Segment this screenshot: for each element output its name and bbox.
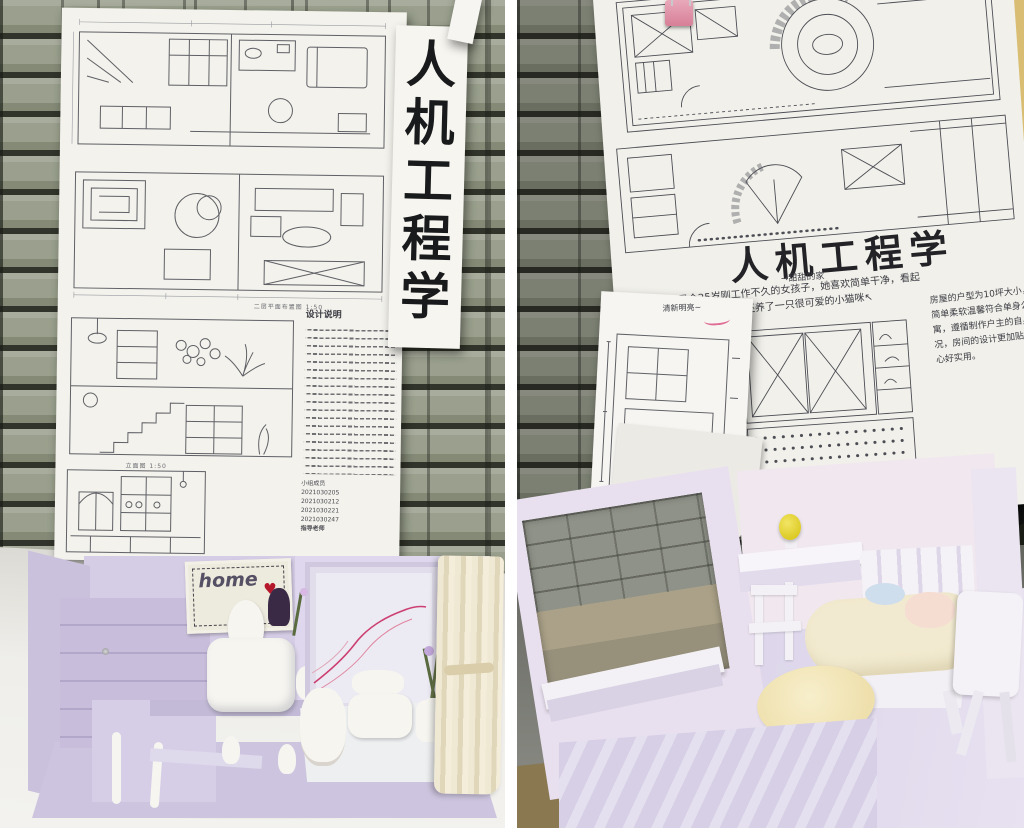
- design-notes-handwriting: [303, 324, 397, 475]
- model-rocking-chair: [300, 688, 346, 766]
- section-drawing: [64, 308, 302, 467]
- plant-flower: [300, 588, 308, 596]
- title-char: 人: [394, 35, 467, 95]
- model-stool: [222, 736, 240, 764]
- plant-flower: [424, 646, 434, 656]
- floor-plan-drawing-b: [66, 164, 392, 303]
- model-sofa: [348, 694, 412, 738]
- shelf-knob: [102, 648, 109, 655]
- dark-vase: [268, 588, 290, 626]
- photo-collage: 二层平面布置图 1:50 立面图 1:50 设计说明: [0, 0, 1024, 828]
- title-char: 程: [390, 209, 463, 269]
- binder-clip-handle: [671, 0, 691, 6]
- title-char: 机: [393, 93, 466, 153]
- model-post: [112, 732, 121, 804]
- design-notes-heading: 设计说明: [306, 307, 398, 321]
- left-poster-sheet: 二层平面布置图 1:50 立面图 1:50 设计说明: [54, 8, 407, 565]
- yellow-lamp: [779, 514, 801, 540]
- blue-pillow: [865, 583, 905, 605]
- pink-scribble: [704, 314, 731, 326]
- design-notes-block: 设计说明: [303, 307, 397, 476]
- floor-plan-drawing-a: [70, 18, 394, 164]
- team-members-block: 小组成员 2021030205 2021030212 2021030221 20…: [300, 479, 395, 556]
- model-stool: [278, 744, 296, 774]
- side-note-block: 房屋的户型为10坪大小， 简单柔软温馨符合单身公 寓，遵循制作户主的自身情 况，…: [929, 283, 1024, 369]
- model-curtain: [434, 555, 504, 794]
- vertical-title-strip: 人 机 工 程 学: [388, 25, 468, 349]
- title-char: 学: [388, 267, 461, 327]
- model-sofa-back: [352, 670, 404, 696]
- sheet-note: 清新明亮~: [662, 301, 701, 316]
- home-sign-text: home: [198, 568, 258, 592]
- right-photo: 人机工程学 →甜甜的家 客户分析：是个25岁刚工作不久的女孩子，她喜欢简单干净，…: [517, 0, 1024, 828]
- left-photo: 二层平面布置图 1:50 立面图 1:50 设计说明: [0, 0, 505, 828]
- model-bed: [207, 638, 295, 712]
- pink-pillow: [905, 592, 955, 628]
- kitchen-elevation-drawing: [60, 464, 213, 560]
- teacher-line: 指导老师: [301, 524, 395, 534]
- title-char: 工: [391, 151, 464, 211]
